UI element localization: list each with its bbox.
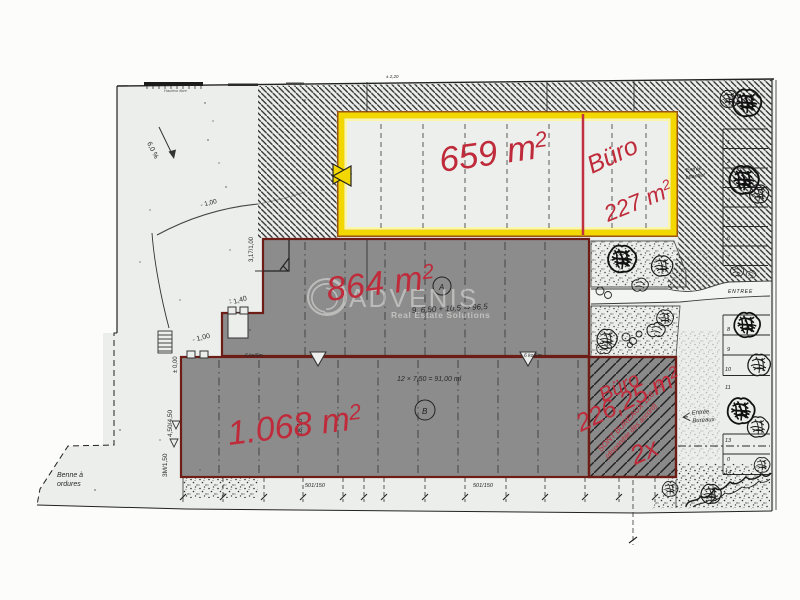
svg-text:10: 10: [725, 367, 732, 373]
svg-text:ordures: ordures: [57, 481, 81, 488]
svg-text:13: 13: [725, 438, 732, 444]
svg-text:6 ko/6m: 6 ko/6m: [245, 353, 263, 359]
svg-text:14: 14: [725, 470, 731, 476]
svg-text:9: 9: [727, 347, 730, 353]
svg-text:6 ko/6m: 6 ko/6m: [524, 353, 542, 359]
svg-text:Benne à: Benne à: [57, 472, 83, 479]
svg-text:± 2,20: ± 2,20: [386, 74, 399, 79]
svg-text:2: 2: [726, 159, 730, 165]
svg-text:Hauteur libre: Hauteur libre: [164, 88, 188, 93]
svg-text:501/150: 501/150: [305, 483, 326, 489]
svg-text:ENTREE: ENTREE: [728, 289, 753, 295]
svg-text:12 × 7,50 = 91,00 ml: 12 × 7,50 = 91,00 ml: [397, 376, 462, 383]
svg-text:501/150: 501/150: [473, 483, 494, 489]
svg-text:Entrée: Entrée: [692, 409, 711, 416]
svg-text:4: 4: [727, 198, 730, 204]
svg-text:B: B: [422, 407, 428, 416]
svg-text:1: 1: [727, 140, 730, 146]
svg-text:3M/1,50: 3M/1,50: [162, 453, 169, 477]
svg-text:3,17/1,00: 3,17/1,00: [249, 236, 255, 262]
svg-text:Real Estate Solutions: Real Estate Solutions: [391, 310, 491, 320]
svg-text:11: 11: [725, 385, 731, 391]
svg-text:± 0,00: ± 0,00: [173, 356, 179, 373]
